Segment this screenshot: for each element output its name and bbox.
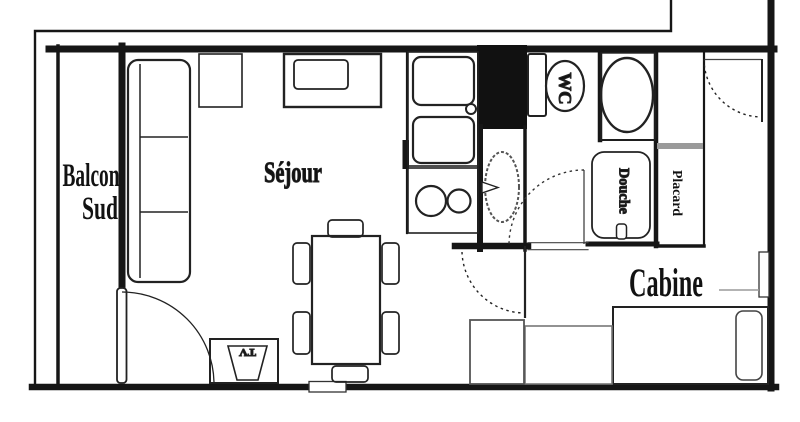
burner-large <box>416 186 446 216</box>
shower-drain <box>617 224 627 239</box>
sideboard <box>284 54 381 107</box>
balcony-label-line2: Sud <box>82 191 118 227</box>
closet-shelf <box>657 143 703 149</box>
floor-plan: WC Douche Placard Cabine <box>0 0 800 422</box>
toilet-cistern <box>528 54 546 116</box>
dining-chair-top <box>328 220 363 237</box>
bathroom-door <box>509 170 584 245</box>
sofa <box>128 60 190 282</box>
balcony-door <box>117 288 214 384</box>
tap <box>482 182 498 193</box>
sink-basin-bottom <box>413 117 474 163</box>
washbasin-niche <box>482 152 519 222</box>
dining-chair-bottom <box>332 366 368 382</box>
entrance-door <box>704 59 762 122</box>
tv-label: TV <box>239 346 256 358</box>
balcony-door-leaf <box>117 288 127 383</box>
bathroom-threshold <box>528 243 588 250</box>
kitchen <box>408 52 478 233</box>
cabin-label: Cabine <box>629 260 703 305</box>
storage-cabinet <box>470 320 524 384</box>
shower-room: Douche <box>592 53 655 239</box>
dining-chair-left-lower <box>293 312 310 354</box>
balcony-label-line1: Balcon <box>63 158 120 194</box>
storage-chest <box>525 326 612 384</box>
window-bottom-wall <box>309 382 346 393</box>
wc-room: WC <box>528 54 584 116</box>
wc-label: WC <box>555 73 575 105</box>
cooktop-unit <box>408 168 478 233</box>
washbasin-large <box>601 58 653 132</box>
window-right-wall <box>759 252 769 297</box>
shower-label: Douche <box>616 168 632 214</box>
dining-chair-left-upper <box>293 243 310 284</box>
dining-chair-right-lower <box>382 312 399 354</box>
side-table <box>199 54 242 107</box>
cabin-door <box>462 246 525 318</box>
sink-basin-top <box>413 57 474 105</box>
outer-building-line <box>35 1 671 386</box>
living-room-label: Séjour <box>264 156 322 189</box>
burner-small <box>448 190 471 213</box>
cabin-room: Cabine <box>470 260 768 384</box>
dining-table <box>312 236 380 364</box>
pillow <box>736 311 762 380</box>
faucet <box>466 104 476 114</box>
floor-plan-svg: WC Douche Placard Cabine <box>0 0 800 422</box>
technical-duct <box>477 45 527 129</box>
cabin-door-swing <box>462 252 524 313</box>
bathroom-door-swing <box>509 170 584 245</box>
vanity-counter <box>601 53 655 140</box>
sideboard-inner <box>294 60 348 89</box>
entrance-door-swing <box>704 59 762 117</box>
balcony-door-swing <box>122 292 214 384</box>
living-room: TV Séjour <box>128 54 399 383</box>
closet-label: Placard <box>670 170 685 216</box>
balcony: Balcon Sud <box>63 158 120 227</box>
bed <box>613 307 768 384</box>
dining-chair-right-upper <box>382 243 399 284</box>
